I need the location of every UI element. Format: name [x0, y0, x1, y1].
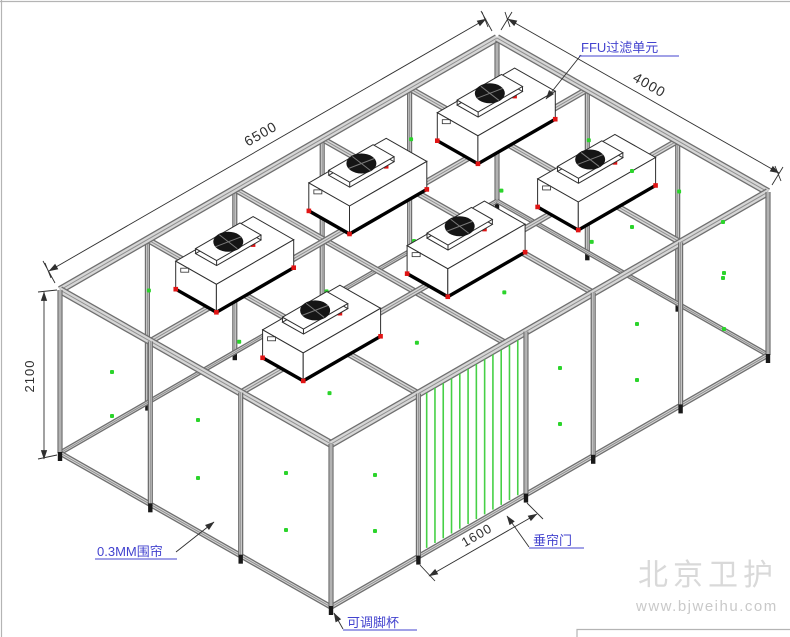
- green-dot: [722, 327, 726, 331]
- green-dot: [110, 370, 114, 374]
- dim-text-4000: 4000: [630, 69, 668, 100]
- green-dot: [630, 169, 634, 173]
- ffu-corner-mark: [291, 265, 296, 270]
- ffu-corner-mark: [576, 228, 581, 233]
- green-dot: [630, 225, 634, 229]
- ffu-corner-mark: [405, 271, 410, 276]
- front-left-floor-rail: [60, 453, 331, 607]
- ffu-corner-mark: [476, 161, 481, 166]
- ffu-corner-mark: [425, 187, 430, 192]
- green-dot: [284, 528, 288, 532]
- green-dot: [721, 220, 725, 224]
- ffu-corner-mark: [378, 334, 383, 339]
- green-dot: [721, 276, 725, 280]
- door-curtain-layer: [427, 340, 518, 548]
- ffu-corner-mark: [301, 379, 306, 384]
- watermark-url: www.bjweihu.com: [635, 598, 778, 615]
- adjustable-foot-cup: [678, 404, 682, 413]
- foot-label: 可调脚杯: [347, 615, 399, 630]
- green-dot: [587, 138, 591, 142]
- bottom-border-line: [577, 630, 790, 637]
- cad-canvas: 6500 4000 2100 1600 FFU过滤单元 0.3MM围帘 垂帘门 …: [0, 0, 790, 637]
- adjustable-foot-cup: [238, 555, 242, 564]
- ffu-corner-mark: [553, 117, 558, 122]
- green-dot: [147, 288, 151, 292]
- green-dot: [722, 271, 726, 275]
- green-dot: [196, 476, 200, 480]
- green-dot: [590, 240, 594, 244]
- green-dot: [373, 529, 377, 533]
- ffu-corner-mark: [173, 287, 178, 292]
- ffu-corner-mark: [260, 355, 265, 360]
- adjustable-foot-cup: [148, 503, 152, 512]
- green-dot: [373, 473, 377, 477]
- ffu-corner-mark: [435, 138, 440, 143]
- green-dot: [237, 340, 241, 344]
- adjustable-foot-cup: [58, 452, 62, 461]
- adjustable-foot-cup: [329, 606, 333, 615]
- green-dot: [558, 422, 562, 426]
- green-dot: [328, 391, 332, 395]
- green-dot: [499, 189, 503, 193]
- ffu-corner-mark: [307, 209, 312, 214]
- green-dot: [415, 341, 419, 345]
- green-dot: [635, 322, 639, 326]
- green-dot: [502, 290, 506, 294]
- adjustable-foot-cup: [524, 494, 528, 503]
- green-dot: [196, 418, 200, 422]
- ffu-corner-mark: [347, 232, 352, 237]
- cleanroom-isometric-drawing: 6500 4000 2100 1600 FFU过滤单元 0.3MM围帘 垂帘门 …: [0, 0, 790, 637]
- watermark-brand: 北京卫护: [638, 559, 778, 592]
- door-label: 垂帘门: [533, 533, 572, 548]
- adjustable-foot-cup: [416, 556, 420, 565]
- green-dot: [284, 471, 288, 475]
- adjustable-foot-cup: [766, 354, 770, 363]
- ffu-corner-mark: [214, 310, 219, 315]
- ffu-corner-mark: [653, 183, 658, 188]
- green-dot: [409, 137, 413, 141]
- green-dot: [110, 414, 114, 418]
- foot-leader-line: [334, 613, 343, 629]
- ffu-corner-mark: [535, 205, 540, 210]
- green-dot: [677, 190, 681, 194]
- ffu-label: FFU过滤单元: [581, 40, 658, 55]
- dim-text-2100: 2100: [22, 360, 37, 393]
- dim-ticks-2100: [38, 290, 57, 459]
- ffu-corner-mark: [445, 294, 450, 299]
- green-dot: [635, 378, 639, 382]
- green-dot: [558, 366, 562, 370]
- adjustable-foot-cup: [591, 455, 595, 464]
- dim-text-6500: 6500: [241, 118, 279, 149]
- ffu-corner-mark: [523, 250, 528, 255]
- curtain-label: 0.3MM围帘: [97, 544, 163, 559]
